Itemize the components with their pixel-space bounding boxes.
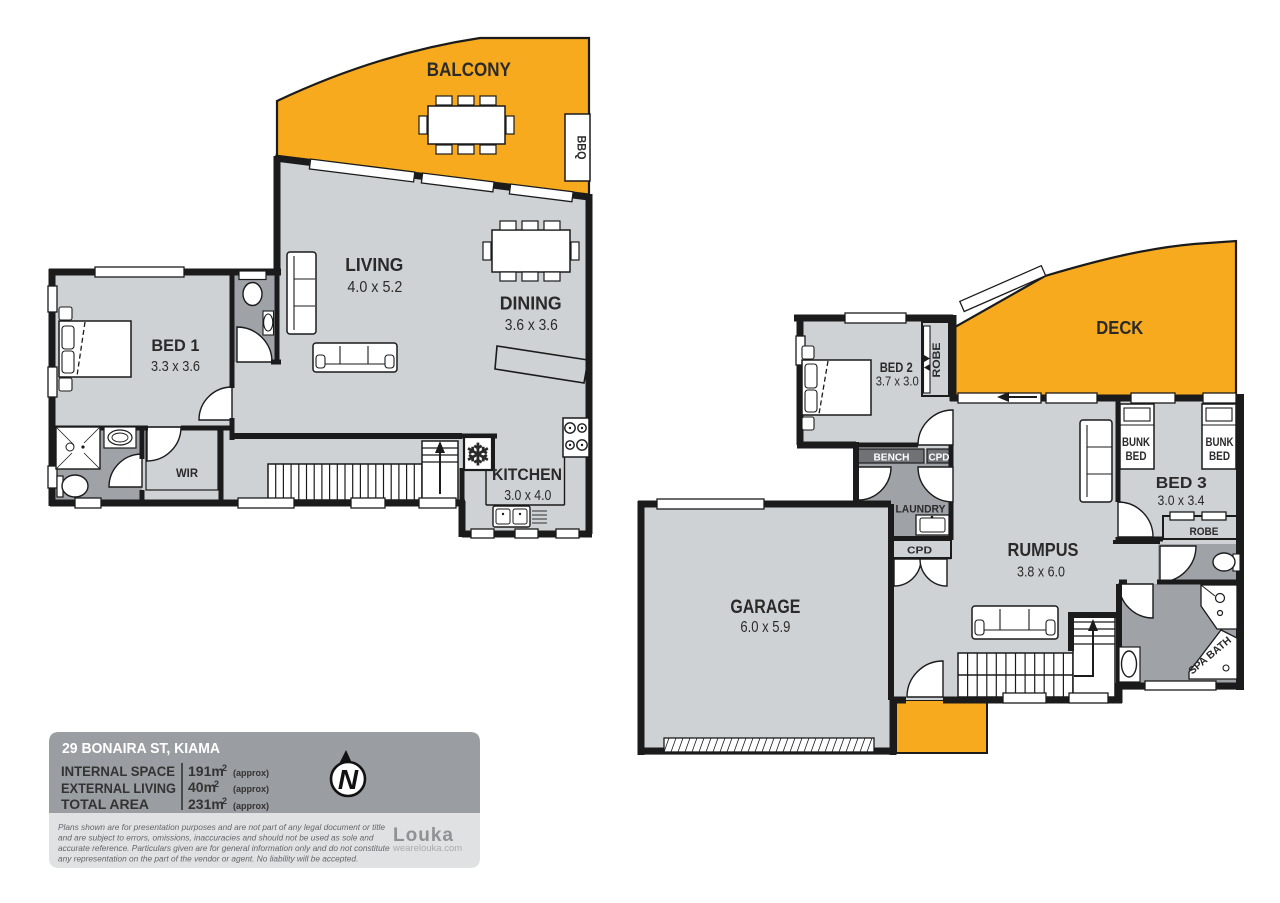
svg-text:4.0 x 5.2: 4.0 x 5.2 bbox=[347, 279, 402, 296]
svg-text:CPD: CPD bbox=[907, 545, 932, 557]
svg-text:(approx): (approx) bbox=[233, 784, 269, 794]
svg-text:BED 3: BED 3 bbox=[1156, 475, 1207, 492]
svg-text:CPD: CPD bbox=[929, 453, 950, 464]
svg-text:3.7 x 3.0: 3.7 x 3.0 bbox=[876, 375, 919, 389]
svg-text:3.8 x 6.0: 3.8 x 6.0 bbox=[1017, 565, 1065, 581]
svg-text:ROBE: ROBE bbox=[931, 343, 943, 378]
svg-text:(approx): (approx) bbox=[233, 801, 269, 811]
svg-text:BUNK: BUNK bbox=[1206, 437, 1235, 449]
svg-text:BUNK: BUNK bbox=[1122, 437, 1151, 449]
svg-text:LAUNDRY: LAUNDRY bbox=[896, 504, 947, 516]
svg-text:N: N bbox=[338, 764, 359, 795]
svg-text:3.0 x 3.4: 3.0 x 3.4 bbox=[1158, 492, 1205, 508]
svg-text:191m: 191m bbox=[188, 763, 224, 779]
svg-text:GARAGE: GARAGE bbox=[730, 597, 800, 618]
svg-text:3.0 x 4.0: 3.0 x 4.0 bbox=[504, 488, 551, 504]
svg-text:accurate reference. Particular: accurate reference. Particulars given ar… bbox=[58, 843, 390, 853]
svg-text:ROBE: ROBE bbox=[1190, 526, 1219, 538]
svg-text:40m: 40m bbox=[188, 779, 216, 795]
svg-text:6.0 x 5.9: 6.0 x 5.9 bbox=[740, 619, 790, 636]
svg-text:WIR: WIR bbox=[176, 468, 199, 480]
svg-text:BBQ: BBQ bbox=[575, 136, 587, 160]
svg-text:and are subject to errors, omi: and are subject to errors, omissions, in… bbox=[58, 833, 374, 843]
svg-text:BALCONY: BALCONY bbox=[427, 60, 511, 81]
svg-text:29 BONAIRA ST, KIAMA: 29 BONAIRA ST, KIAMA bbox=[62, 741, 221, 757]
svg-text:INTERNAL SPACE: INTERNAL SPACE bbox=[61, 764, 175, 779]
svg-text:3.6 x 3.6: 3.6 x 3.6 bbox=[505, 317, 558, 334]
svg-text:(approx): (approx) bbox=[233, 768, 269, 778]
svg-text:BED 2: BED 2 bbox=[880, 360, 913, 375]
svg-text:BENCH: BENCH bbox=[874, 453, 910, 464]
svg-text:BED 1: BED 1 bbox=[151, 336, 199, 355]
svg-text:wearelouka.com: wearelouka.com bbox=[392, 843, 462, 854]
svg-text:EXTERNAL LIVING: EXTERNAL LIVING bbox=[61, 781, 176, 796]
svg-text:RUMPUS: RUMPUS bbox=[1008, 540, 1079, 560]
svg-text:2: 2 bbox=[222, 796, 227, 806]
svg-text:3.3 x 3.6: 3.3 x 3.6 bbox=[151, 358, 200, 375]
svg-text:KITCHEN: KITCHEN bbox=[492, 466, 562, 484]
svg-text:BED: BED bbox=[1209, 451, 1230, 463]
svg-text:TOTAL AREA: TOTAL AREA bbox=[61, 797, 149, 812]
svg-text:Plans shown are for presentati: Plans shown are for presentation purpose… bbox=[58, 822, 385, 832]
svg-text:BED: BED bbox=[1126, 451, 1147, 463]
svg-text:❄: ❄ bbox=[465, 439, 490, 472]
svg-text:2: 2 bbox=[222, 763, 227, 773]
svg-text:any representation on the part: any representation on the part of the ve… bbox=[58, 854, 358, 864]
svg-text:231m: 231m bbox=[188, 796, 224, 812]
svg-text:DINING: DINING bbox=[500, 294, 562, 314]
svg-text:DECK: DECK bbox=[1096, 318, 1143, 338]
svg-text:LIVING: LIVING bbox=[345, 255, 403, 275]
svg-text:2: 2 bbox=[214, 779, 219, 789]
